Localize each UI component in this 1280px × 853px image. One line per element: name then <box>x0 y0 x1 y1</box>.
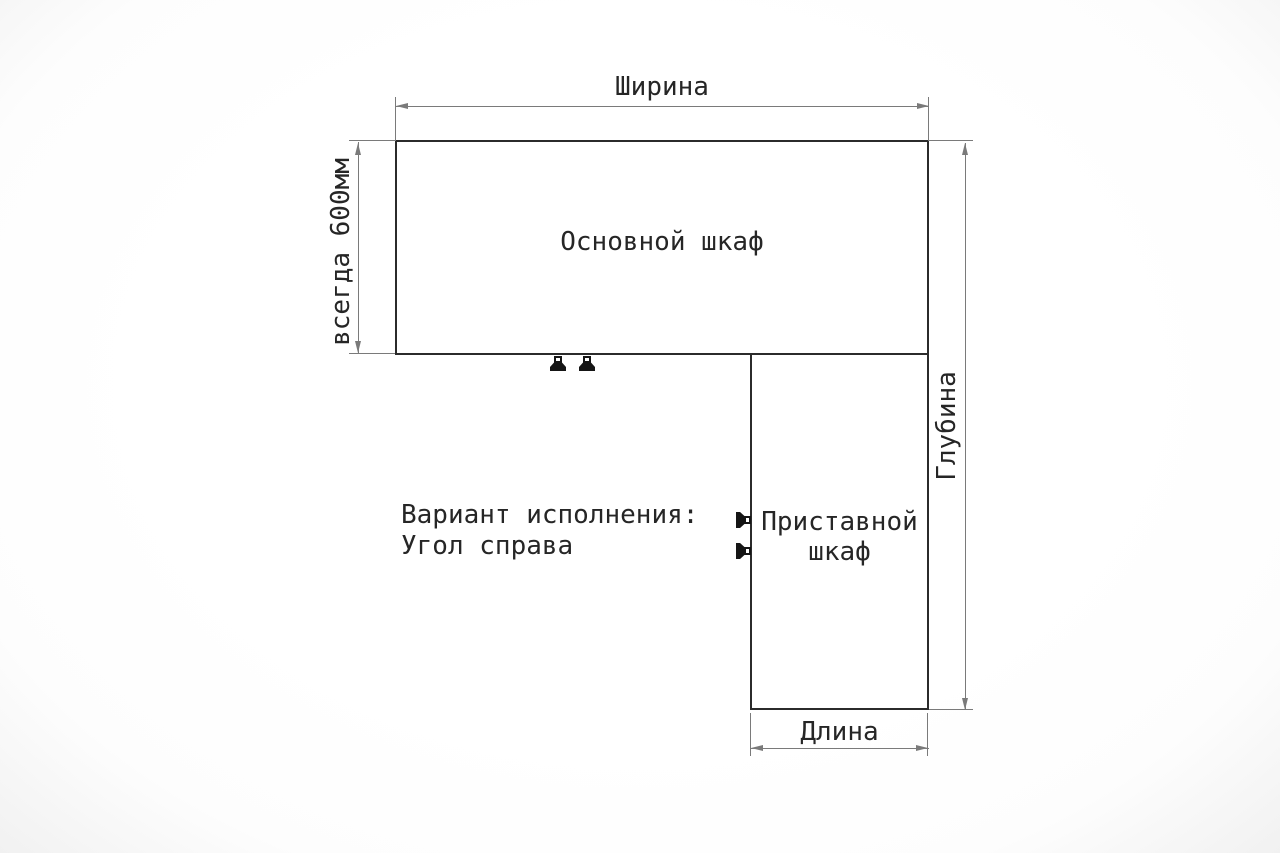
attached-cabinet-label-line1: Приставной <box>752 507 927 537</box>
arrow-right-icon <box>916 745 928 751</box>
fastener-stem <box>744 516 751 524</box>
cabinet-layout-diagram: Основной шкаф Приставной шкаф Ширина все… <box>0 0 1280 853</box>
arrow-up-icon <box>355 143 361 155</box>
fastener-head <box>550 362 566 371</box>
attached-cabinet-label-line2: шкаф <box>752 537 927 567</box>
fastener-head <box>579 362 595 371</box>
variant-note: Вариант исполнения: Угол справа <box>401 500 698 562</box>
length-dimension-label: Длина <box>750 717 929 747</box>
fastener-icon <box>735 511 751 529</box>
arrow-left-icon <box>396 103 408 109</box>
attached-cabinet-label: Приставной шкаф <box>752 507 927 567</box>
depth-dimension-label: Глубина <box>932 371 962 481</box>
arrow-left-icon <box>751 745 763 751</box>
fastener-stem <box>744 547 751 555</box>
fastener-icon <box>735 542 751 560</box>
width-dimension-label: Ширина <box>395 72 929 102</box>
fastener-icon <box>578 356 596 372</box>
main-cabinet-outline: Основной шкаф <box>395 140 929 355</box>
main-depth-dimension-label: всегда 600мм <box>326 158 356 346</box>
main-depth-extension-line-top <box>349 140 395 141</box>
arrow-right-icon <box>917 103 929 109</box>
depth-extension-line-top <box>929 140 973 141</box>
fastener-stem <box>583 356 591 363</box>
main-depth-dimension-line <box>358 142 359 353</box>
fastener-head <box>736 512 745 528</box>
fastener-icon <box>549 356 567 372</box>
fastener-head <box>736 543 745 559</box>
arrow-down-icon <box>355 341 361 353</box>
length-dimension-line <box>750 748 929 749</box>
variant-note-line2: Угол справа <box>401 531 698 562</box>
arrow-down-icon <box>962 698 968 710</box>
variant-note-line1: Вариант исполнения: <box>401 500 698 531</box>
width-dimension-line <box>395 106 929 107</box>
depth-dimension-line <box>965 143 966 709</box>
main-cabinet-label: Основной шкаф <box>397 227 927 257</box>
arrow-up-icon <box>962 143 968 155</box>
main-depth-extension-line-bottom <box>349 353 395 354</box>
attached-cabinet-outline: Приставной шкаф <box>750 355 929 710</box>
fastener-stem <box>554 356 562 363</box>
